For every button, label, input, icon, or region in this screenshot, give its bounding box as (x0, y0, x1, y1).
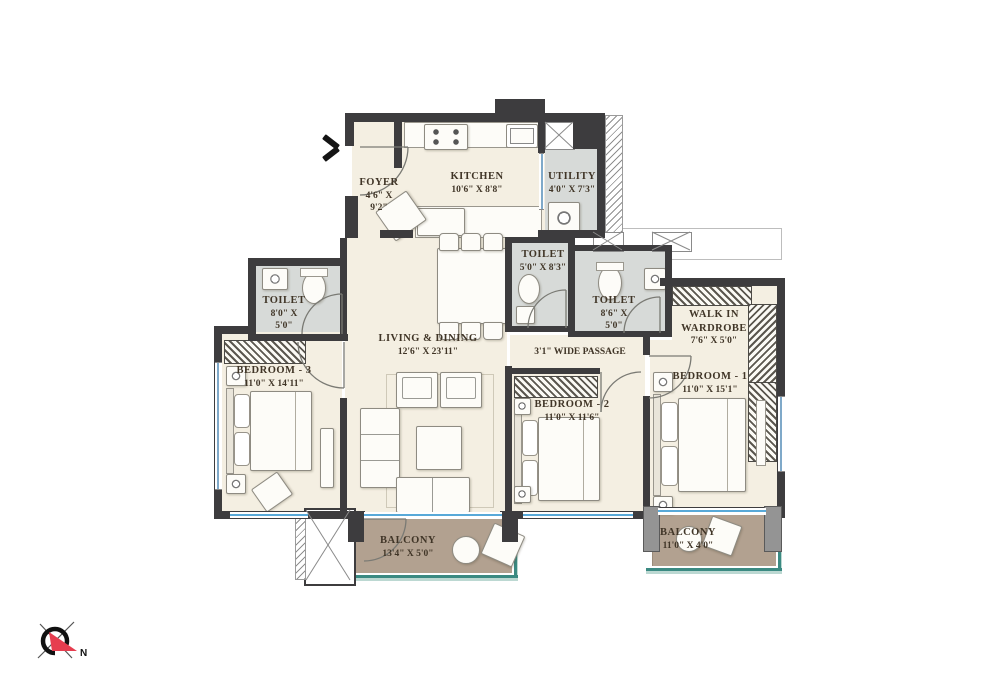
side-table (226, 474, 246, 494)
washbasin-icon (516, 306, 535, 324)
window (215, 362, 222, 490)
side-table (514, 486, 531, 503)
wall (575, 245, 672, 251)
sliding-door-panel (756, 400, 766, 466)
dining-chair (461, 233, 481, 251)
sofa-three-seat (360, 408, 400, 488)
desk (320, 428, 334, 488)
round-table (452, 536, 480, 564)
wall (495, 99, 545, 113)
wall (394, 113, 402, 168)
shaft-x-icon (545, 122, 575, 150)
stove-icon (424, 124, 468, 150)
bed (226, 388, 312, 472)
refrigerator (417, 208, 465, 236)
toilet-cistern (300, 268, 328, 277)
room-label-passage: 3'1" WIDE PASSAGE (520, 346, 640, 358)
room-label-utility: UTILITY 4'0" X 7'3" (545, 170, 599, 196)
room-label-bedroom-1: BEDROOM - 1 11'0" X 15'1" (660, 370, 760, 396)
wall (660, 278, 785, 286)
room-label-foyer: FOYER 4'6" X 9'2" (356, 176, 402, 214)
wall (502, 512, 518, 542)
wall (512, 326, 568, 332)
sofa-two-seat (396, 477, 470, 513)
duct-strip (605, 115, 623, 239)
wall (505, 368, 600, 374)
balcony-rail (348, 573, 518, 581)
dining-chair (439, 233, 459, 251)
bed (653, 394, 747, 494)
wall (340, 238, 347, 340)
sliding-window (364, 512, 502, 519)
balcony-pillar (764, 506, 782, 552)
wall (573, 113, 600, 149)
wall (538, 113, 545, 153)
window (230, 512, 308, 518)
room-label-bedroom-2: BEDROOM - 2 11'0" X 11'6" (522, 398, 622, 424)
sliding-window (658, 508, 766, 515)
wall (512, 237, 575, 243)
room-label-toilet-mid: TOILET 8'6" X 5'0" (591, 294, 637, 332)
window (523, 512, 633, 518)
wardrobe-bed2 (514, 376, 598, 398)
wardrobe-bed3 (224, 340, 306, 364)
wall (380, 230, 413, 238)
wall (665, 245, 672, 337)
wall (505, 366, 512, 518)
balcony-rail (646, 566, 782, 574)
wardrobe-walkin-top (672, 286, 752, 306)
window (778, 396, 785, 472)
room-label-kitchen: KITCHEN 10'6" X 8'8" (429, 170, 525, 196)
dining-table (437, 248, 507, 324)
washbasin-icon (262, 268, 288, 290)
wall (340, 398, 347, 518)
room-label-walk-in-wardrobe: WALK IN WARDROBE 7'6" X 5'0" (679, 308, 749, 348)
wall (248, 334, 348, 341)
room-label-balcony-bed1: BALCONY 11'0" X 4'0" (648, 526, 728, 552)
toilet-cistern (596, 262, 624, 271)
room-label-toilet-top: TOILET 5'0" X 8'3" (503, 248, 583, 274)
wall (345, 113, 605, 122)
armchair (396, 372, 438, 408)
wall (345, 120, 354, 146)
toilet-wc-icon (518, 274, 540, 304)
wall (643, 337, 650, 355)
room-label-bedroom-3: BEDROOM - 3 11'0" X 14'11" (224, 364, 324, 390)
room-label-toilet-left: TOILET 8'0" X 5'0" (261, 294, 307, 332)
wall (248, 258, 347, 266)
room-label-living-dining: LIVING & DINING 12'6" X 23'11" (373, 332, 483, 358)
entrance-arrow-icon (322, 146, 340, 162)
wall (643, 396, 650, 518)
duct-strip (295, 512, 306, 580)
floor-plan: FOYER 4'6" X 9'2" KITCHEN 10'6" X 8'8" U… (0, 0, 1000, 698)
coffee-table (416, 426, 462, 470)
dining-chair (483, 233, 503, 251)
compass-icon (38, 622, 77, 658)
armchair (440, 372, 482, 408)
wall (348, 512, 364, 542)
room-label-balcony-living: BALCONY 13'4" X 5'0" (363, 534, 453, 560)
window (539, 153, 544, 210)
compass-north-label: N (80, 648, 87, 659)
sink-icon (506, 124, 538, 148)
dining-chair (483, 322, 503, 340)
